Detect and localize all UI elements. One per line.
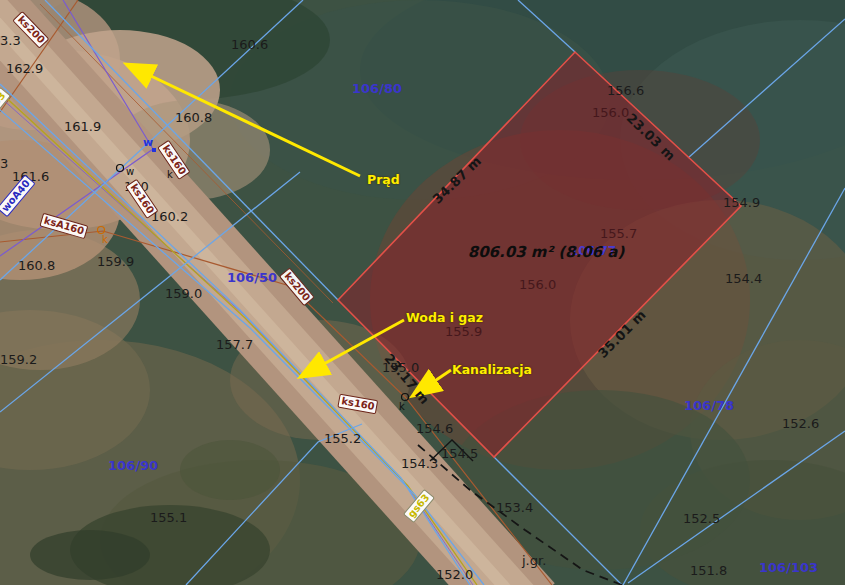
elevation-label: 157.7 [216, 337, 253, 352]
edge-measurement-label: 23.03 m [624, 110, 679, 163]
point-marker-letter: w [143, 136, 153, 149]
utility-line-label: ksA160 [39, 213, 88, 239]
elevation-label: 152.5 [683, 511, 720, 526]
parcel-number-label: 106/90 [108, 458, 158, 473]
parcel-number-label: 106/78 [684, 398, 734, 413]
point-marker-letter: w [126, 166, 134, 177]
edge-measurement-label: 23.17 m [382, 351, 433, 408]
edge-measurement-label: 35.01 m [595, 307, 649, 361]
utility-line-label: ks160 [157, 140, 191, 181]
elevation-label: 159.0 [165, 286, 202, 301]
cadastral-map: 3.3162.9161.93161.6160.6160.8160160.2160… [0, 0, 845, 585]
elevation-label: 155.9 [445, 324, 482, 339]
elevation-label: 161.6 [12, 169, 49, 184]
parcel-number-label: 106/50 [227, 270, 277, 285]
point-marker-letter: k [102, 234, 108, 245]
elevation-label: 154.6 [416, 421, 453, 436]
elevation-label: 155.0 [382, 360, 419, 375]
utility-line-label: gs63 [403, 489, 435, 523]
elevation-label: 153.4 [496, 500, 533, 515]
utility-line-label: gs63 [0, 87, 11, 121]
elevation-label: 154.5 [441, 446, 478, 461]
elevation-label: 154.9 [723, 195, 760, 210]
utility-annotation-label: Woda i gaz [406, 310, 483, 325]
elevation-label: 161.9 [64, 119, 101, 134]
elevation-label: 160.6 [231, 37, 268, 52]
elevation-label: 155.2 [324, 431, 361, 446]
utility-line-label: ks200 [279, 267, 315, 306]
parcel-number-behind-area: 106/77 [570, 244, 616, 258]
utility-line-label: ks160 [125, 179, 159, 220]
utility-annotation-label: Prąd [367, 172, 400, 187]
utility-line-label: ks160 [337, 394, 378, 415]
parcel-area-label: 806.03 m² (8.06 a) [468, 243, 625, 261]
elevation-label: 154.3 [401, 456, 438, 471]
elevation-label: 160.8 [175, 110, 212, 125]
elevation-label: 162.9 [6, 61, 43, 76]
elevation-label: 3.3 [0, 33, 21, 48]
elevation-label: 151.8 [690, 563, 727, 578]
point-marker-letter: k [399, 401, 405, 412]
edge-measurement-label: 34.87 m [430, 153, 485, 206]
elevation-label: 152.6 [782, 416, 819, 431]
utility-line-label: woA40 [0, 175, 35, 218]
labels-layer: 3.3162.9161.93161.6160.6160.8160160.2160… [0, 0, 845, 585]
elevation-label: 159.2 [0, 352, 37, 367]
parcel-number-label: 106/80 [352, 81, 402, 96]
point-marker-letter: k [167, 169, 173, 180]
parcel-number-label: 106/103 [759, 560, 818, 575]
elevation-label: 154.4 [725, 271, 762, 286]
elevation-label: 155.7 [600, 226, 637, 241]
elevation-label: 159.9 [97, 254, 134, 269]
elevation-label: 155.1 [150, 510, 187, 525]
elevation-label: 152.0 [436, 567, 473, 582]
elevation-label: 156.0 [592, 105, 629, 120]
utility-annotation-label: Kanalizacja [452, 362, 532, 377]
elevation-label: 156.6 [607, 83, 644, 98]
elevation-label: 160 [124, 179, 149, 194]
elevation-label: 160.2 [151, 209, 188, 224]
elevation-label: 3 [0, 156, 8, 171]
elevation-label: j.gr. [522, 553, 546, 568]
utility-line-label: ks200 [12, 11, 49, 49]
elevation-label: 156.0 [519, 277, 556, 292]
elevation-label: 160.8 [18, 258, 55, 273]
